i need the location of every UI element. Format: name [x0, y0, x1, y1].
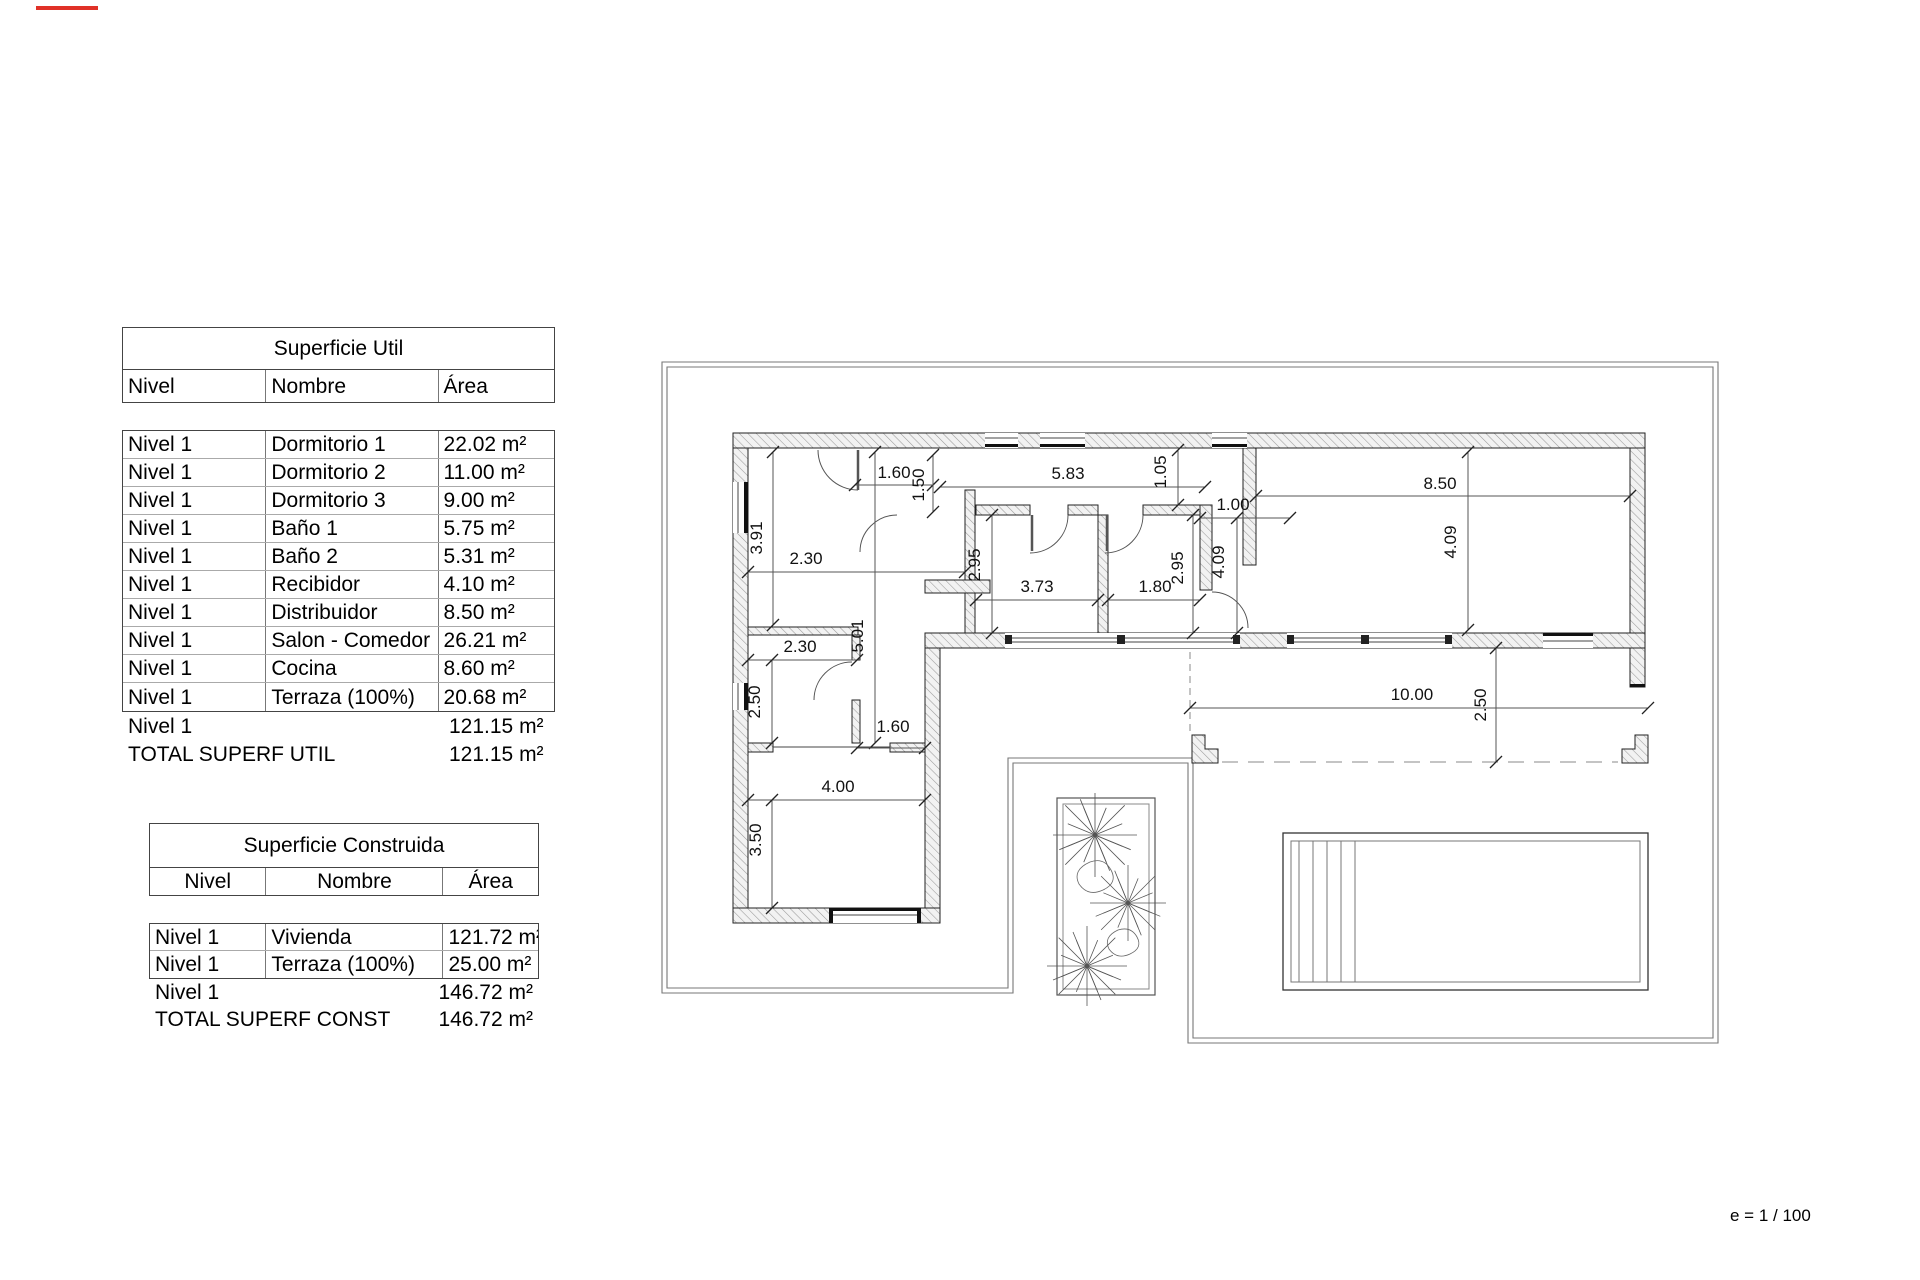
dim-label: 3.91 [747, 521, 766, 554]
dim-label: 1.80 [1138, 577, 1171, 596]
dim-label: 1.00 [1216, 495, 1249, 514]
dim-label: 8.50 [1423, 474, 1456, 493]
plan-sheet: Superficie Util Nivel Nombre Área Nivel … [0, 0, 1920, 1280]
pool [1283, 833, 1648, 990]
scale-note: e = 1 / 100 [1730, 1206, 1811, 1226]
dim-label: 5.01 [848, 619, 867, 652]
planter [1047, 793, 1166, 1006]
dim-label: 3.50 [746, 823, 765, 856]
dim-label: 2.30 [789, 549, 822, 568]
dim-label: 4.09 [1441, 525, 1460, 558]
dim-label: 4.09 [1209, 545, 1228, 578]
floor-plan-drawing: 1.601.503.912.305.831.051.004.092.953.73… [0, 0, 1920, 1280]
dim-label: 2.50 [1471, 688, 1490, 721]
dim-label: 1.60 [877, 463, 910, 482]
dim-label: 10.00 [1391, 685, 1434, 704]
dim-label: 1.50 [909, 468, 928, 501]
dim-label: 1.05 [1151, 455, 1170, 488]
dim-label: 4.00 [821, 777, 854, 796]
dim-label: 1.60 [876, 717, 909, 736]
palm-tree-icon [1053, 793, 1137, 877]
dim-label: 3.73 [1020, 577, 1053, 596]
dim-label: 2.50 [745, 685, 764, 718]
dim-label: 2.95 [965, 548, 984, 581]
dim-label: 5.83 [1051, 464, 1084, 483]
dim-label: 2.30 [783, 637, 816, 656]
dim-label: 2.95 [1168, 551, 1187, 584]
palm-tree-icon [1047, 926, 1127, 1006]
